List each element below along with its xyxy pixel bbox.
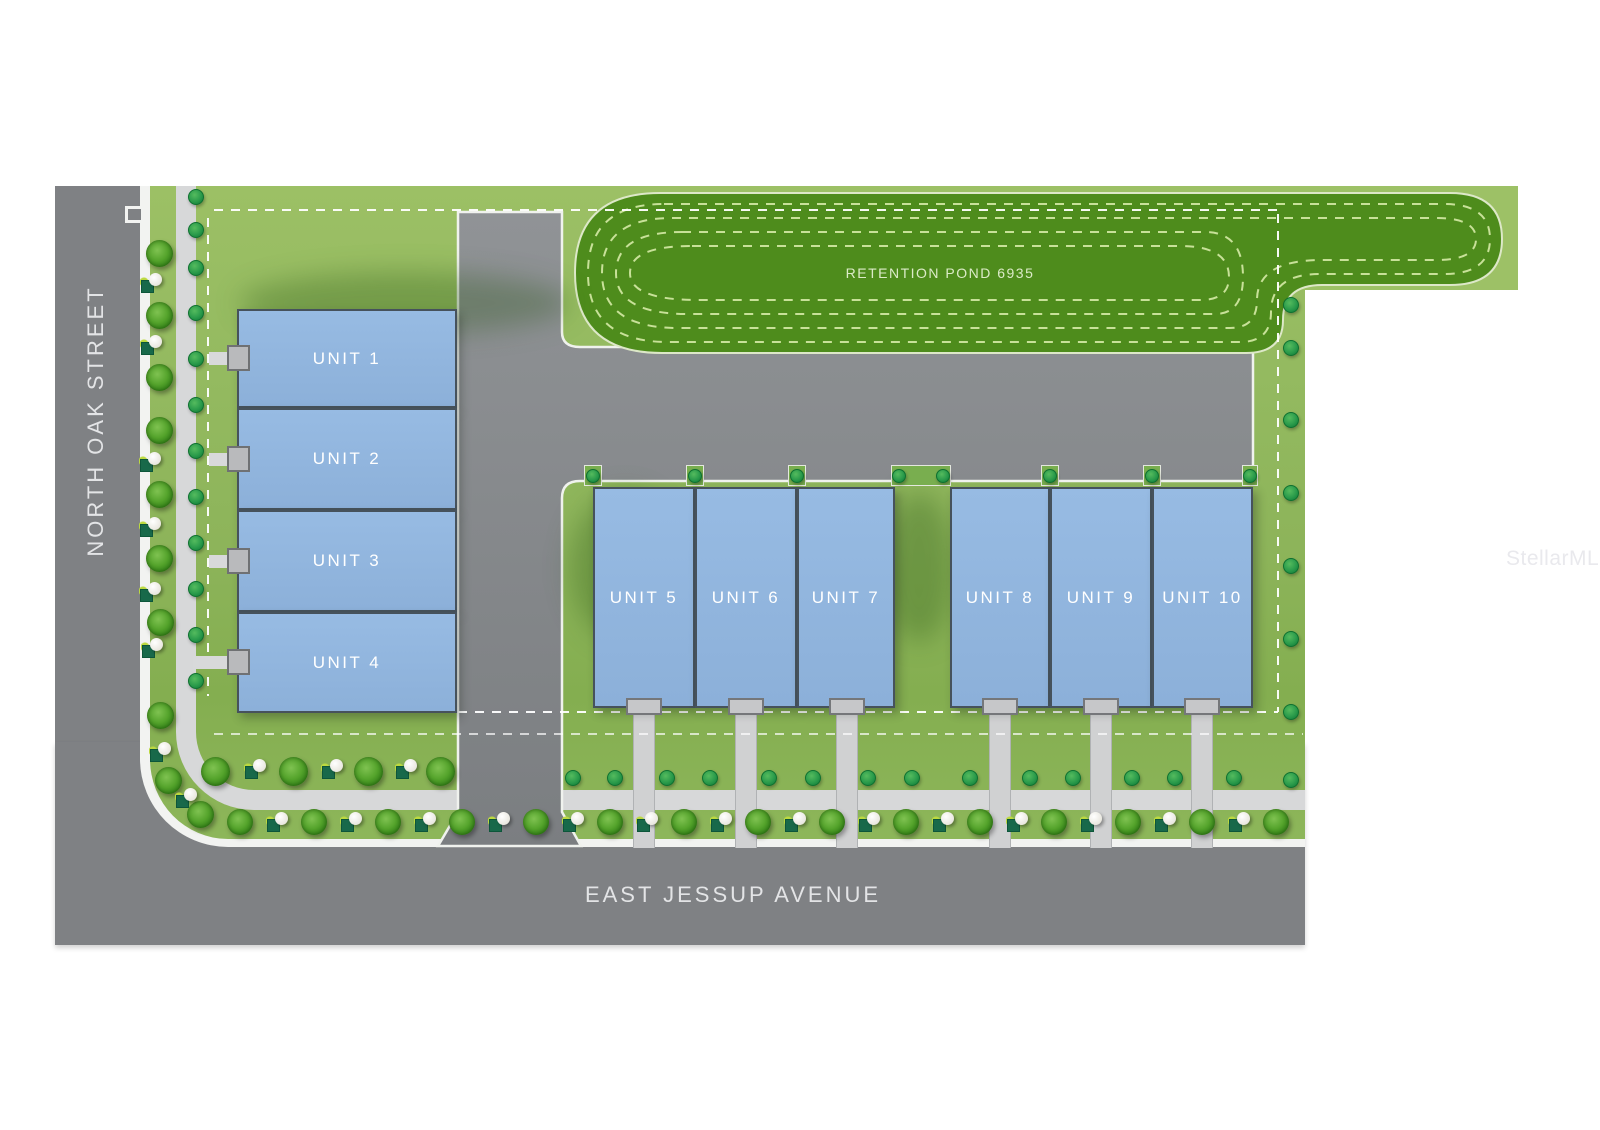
street-label-east-jessup: EAST JESSUP AVENUE [585, 882, 881, 908]
driveway-landing-unit-7 [829, 698, 865, 715]
unit-8-label: UNIT 8 [966, 588, 1035, 608]
unit-2-building: UNIT 2 [237, 408, 457, 510]
planting-square [686, 465, 704, 486]
entry-stub-unit-2 [227, 446, 250, 472]
unit-7-building: UNIT 7 [797, 487, 895, 708]
property-line-north [214, 209, 1278, 211]
unit-1-label: UNIT 1 [313, 349, 382, 369]
planting-square [1242, 465, 1258, 486]
unit-4-building: UNIT 4 [237, 612, 457, 713]
unit-10-label: UNIT 10 [1162, 588, 1243, 608]
unit-5-building: UNIT 5 [593, 487, 695, 708]
driveway-landing-unit-9 [1083, 698, 1119, 715]
planting-square [1143, 465, 1161, 486]
planting-square [584, 465, 602, 486]
entry-walkway-unit-4 [193, 656, 229, 669]
unit-9-label: UNIT 9 [1067, 588, 1136, 608]
entry-walkway-unit-2 [209, 453, 229, 466]
retention-pond [575, 193, 1502, 353]
site-plan: UNIT 1 UNIT 2 UNIT 3 UNIT 4 UNIT 5 UNIT … [0, 0, 1600, 1130]
unit-3-label: UNIT 3 [313, 551, 382, 571]
planting-square [788, 465, 806, 486]
unit-3-building: UNIT 3 [237, 510, 457, 612]
unit-6-building: UNIT 6 [695, 487, 797, 708]
unit-8-building: UNIT 8 [950, 487, 1050, 708]
unit-2-label: UNIT 2 [313, 449, 382, 469]
unit-1-building: UNIT 1 [237, 309, 457, 408]
unit-9-building: UNIT 9 [1050, 487, 1152, 708]
street-label-north-oak: NORTH OAK STREET [83, 285, 109, 556]
unit-10-building: UNIT 10 [1152, 487, 1253, 708]
setback-line-south [214, 733, 1303, 735]
planting-square [1041, 465, 1059, 486]
driveway-landing-unit-10 [1184, 698, 1220, 715]
entry-stub-unit-1 [227, 345, 250, 371]
unit-7-label: UNIT 7 [812, 588, 881, 608]
retention-pond-label: RETENTION POND 6935 [846, 265, 1035, 281]
stellar-mls-watermark: StellarMLS [1506, 547, 1600, 571]
unit-6-label: UNIT 6 [712, 588, 781, 608]
entry-walkway-unit-3 [209, 555, 229, 568]
driveway-landing-unit-8 [982, 698, 1018, 715]
planting-square [891, 465, 951, 486]
entry-walkway-unit-1 [209, 352, 229, 365]
property-line-east [1277, 214, 1279, 712]
entry-stub-unit-3 [227, 548, 250, 574]
unit-5-label: UNIT 5 [610, 588, 679, 608]
entry-stub-unit-4 [227, 649, 250, 675]
unit-4-label: UNIT 4 [313, 653, 382, 673]
driveway-landing-unit-6 [728, 698, 764, 715]
property-line-rear-lots [458, 711, 1278, 713]
driveway-landing-unit-5 [626, 698, 662, 715]
